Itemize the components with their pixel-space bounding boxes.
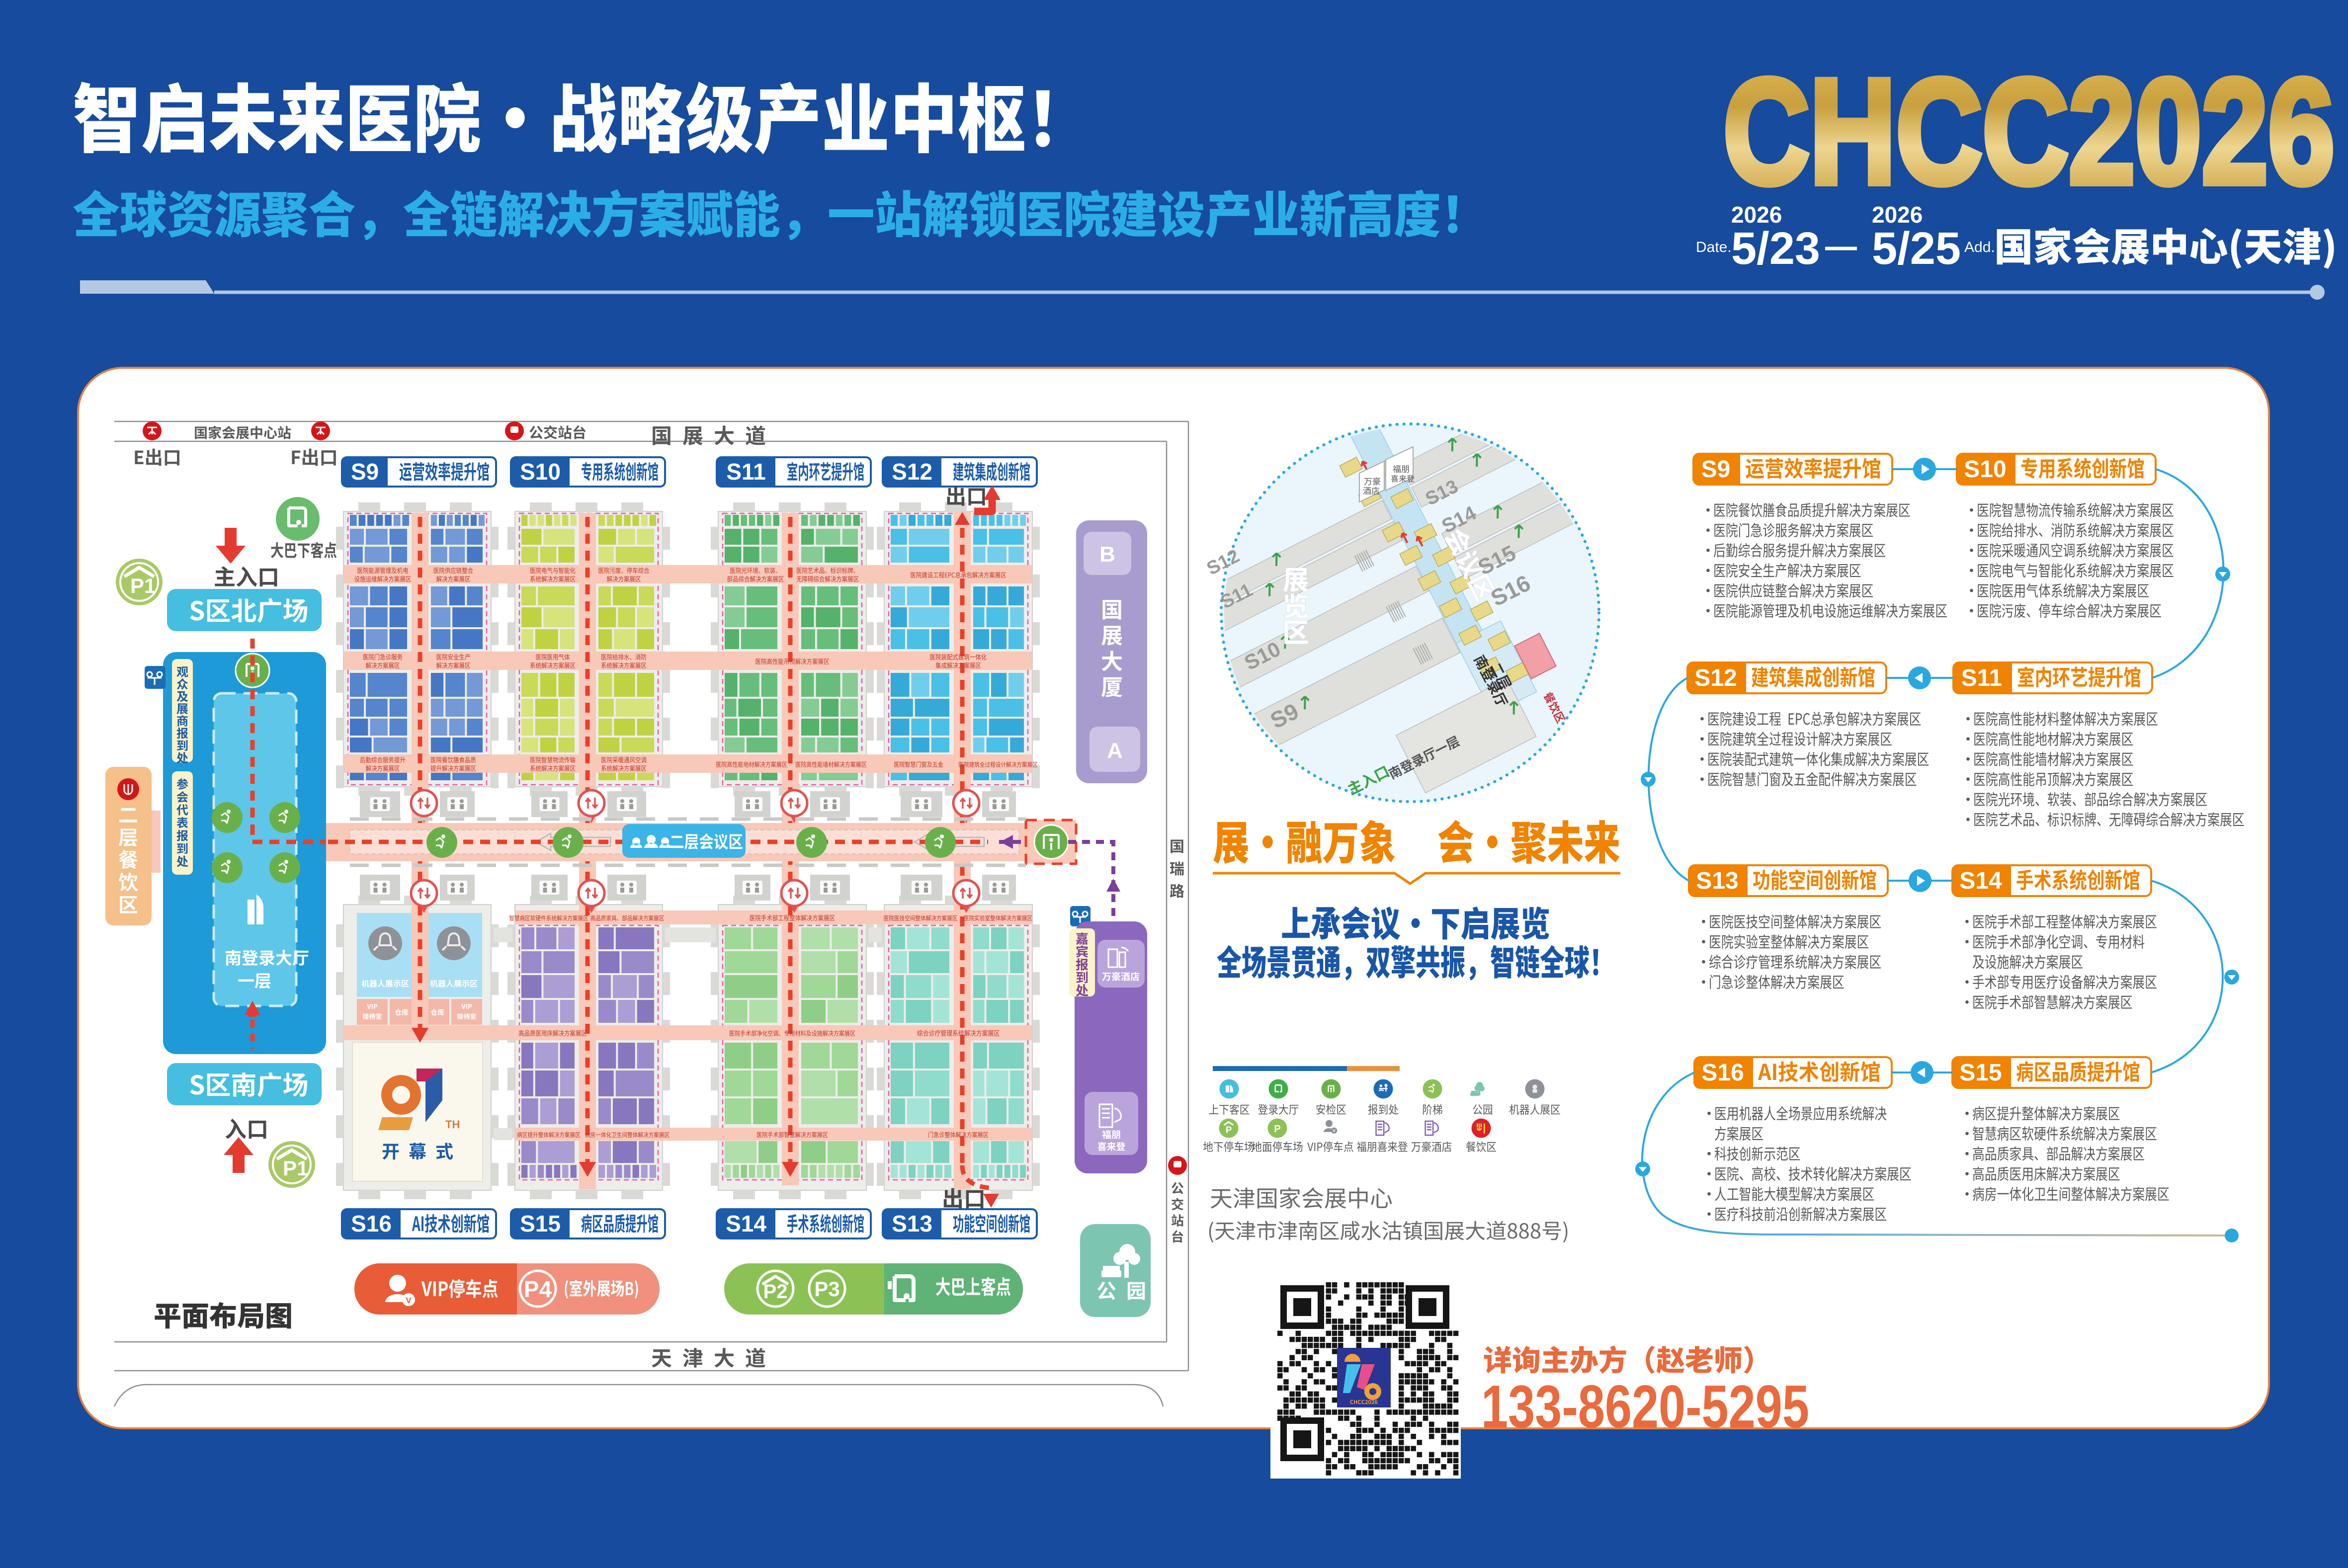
svg-text:S12: S12 bbox=[892, 459, 932, 485]
svg-text:P1: P1 bbox=[283, 1156, 308, 1180]
svg-text:S11: S11 bbox=[1961, 665, 2003, 691]
svg-text:S16: S16 bbox=[351, 1211, 392, 1237]
svg-text:S10: S10 bbox=[520, 459, 561, 485]
svg-text:S14: S14 bbox=[1959, 868, 2002, 894]
svg-text:5/25: 5/25 bbox=[1872, 223, 1961, 274]
svg-text:V: V bbox=[406, 1296, 412, 1305]
svg-text:A: A bbox=[1107, 739, 1123, 763]
svg-text:S12: S12 bbox=[1694, 665, 1737, 691]
svg-text:Date.: Date. bbox=[1696, 239, 1732, 255]
svg-text:S15: S15 bbox=[520, 1211, 561, 1237]
svg-text:P4: P4 bbox=[524, 1276, 552, 1302]
svg-text:S11: S11 bbox=[726, 459, 765, 485]
svg-text:Add.: Add. bbox=[1964, 239, 1995, 255]
svg-text:S9: S9 bbox=[1701, 456, 1731, 483]
svg-text:S16: S16 bbox=[1701, 1060, 1744, 1086]
svg-text:P1: P1 bbox=[130, 574, 156, 597]
svg-text:S13: S13 bbox=[1696, 868, 1738, 894]
svg-text:S15: S15 bbox=[1959, 1060, 2002, 1086]
svg-text:B: B bbox=[1099, 542, 1115, 567]
svg-text:P: P bbox=[1274, 1124, 1281, 1135]
svg-text:P2: P2 bbox=[763, 1281, 788, 1303]
svg-text:S10: S10 bbox=[1964, 456, 2006, 483]
svg-text:TH: TH bbox=[445, 1118, 460, 1131]
svg-text:CHCC2026: CHCC2026 bbox=[1723, 48, 2335, 215]
svg-text:133-8620-5295: 133-8620-5295 bbox=[1481, 1373, 1809, 1440]
svg-text:S9: S9 bbox=[351, 459, 379, 485]
svg-text:P: P bbox=[1226, 1124, 1232, 1135]
svg-text:S13: S13 bbox=[892, 1211, 932, 1237]
svg-text:P3: P3 bbox=[814, 1277, 839, 1301]
svg-text:5/23: 5/23 bbox=[1731, 223, 1820, 274]
svg-text:V: V bbox=[1333, 1128, 1336, 1133]
svg-text:S14: S14 bbox=[726, 1211, 766, 1237]
